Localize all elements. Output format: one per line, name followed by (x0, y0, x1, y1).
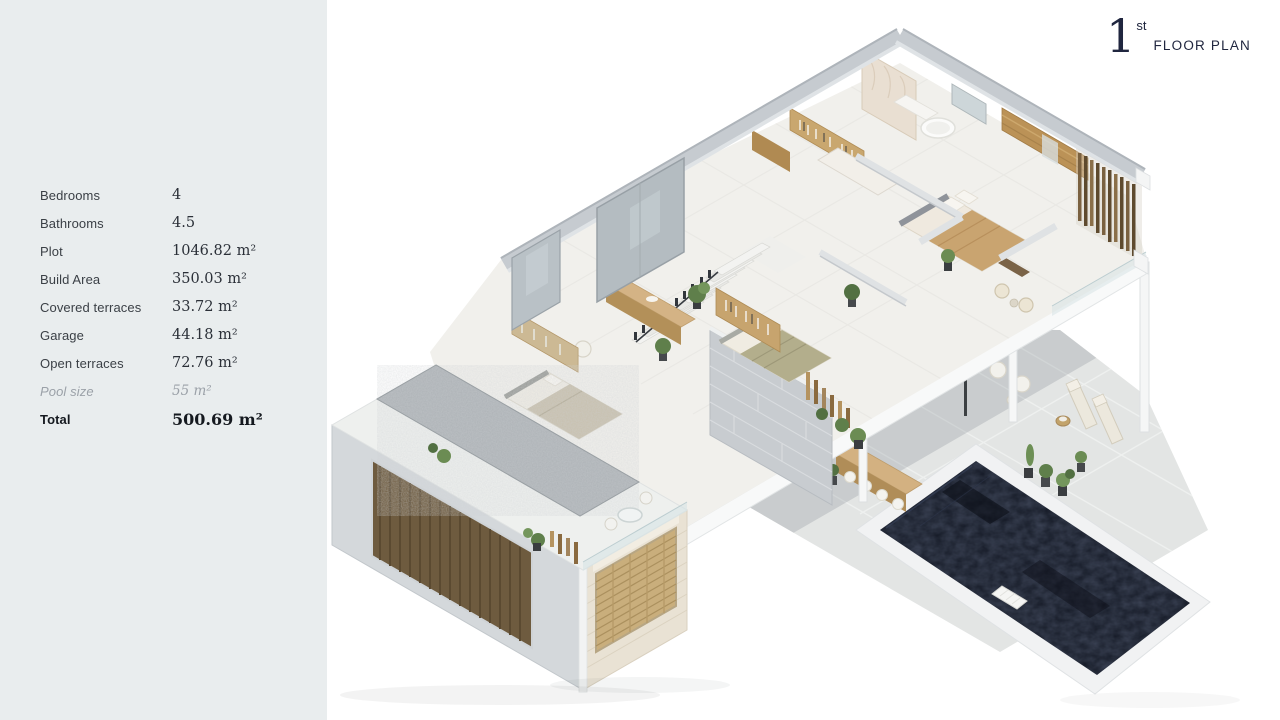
spec-label: Build Area (40, 272, 172, 287)
spec-label: Plot (40, 244, 172, 259)
spec-row-build-area: Build Area 350.03 m² (0, 265, 327, 293)
spec-row-total: Total 500.69 m² (0, 405, 327, 433)
spec-row-covered-terraces: Covered terraces 33.72 m² (0, 293, 327, 321)
spec-row-garage: Garage 44.18 m² (0, 321, 327, 349)
plan-title: 1 st FLOOR PLAN (1106, 16, 1251, 56)
spec-label: Total (40, 412, 172, 427)
spec-value: 4 (172, 187, 327, 203)
spec-value: 500.69 m² (172, 410, 327, 429)
spec-row-pool-size: Pool size 55 m² (0, 377, 327, 405)
spec-row-bedrooms: Bedrooms 4 (0, 181, 327, 209)
spec-value: 350.03 m² (172, 271, 327, 287)
floor-number: 1 (1106, 16, 1135, 56)
floor-ordinal: st (1136, 18, 1146, 33)
spec-label: Garage (40, 328, 172, 343)
spec-value: 44.18 m² (172, 327, 327, 343)
spec-label: Covered terraces (40, 300, 172, 315)
spec-value: 55 m² (172, 383, 327, 399)
spec-value: 1046.82 m² (172, 243, 327, 259)
spec-row-plot: Plot 1046.82 m² (0, 237, 327, 265)
plan-title-label: FLOOR PLAN (1153, 38, 1251, 56)
spec-label: Pool size (40, 384, 172, 399)
spec-value: 33.72 m² (172, 299, 327, 315)
spec-value: 4.5 (172, 215, 327, 231)
spec-label: Bathrooms (40, 216, 172, 231)
spec-table: Bedrooms 4 Bathrooms 4.5 Plot 1046.82 m²… (0, 181, 327, 433)
specs-panel: Bedrooms 4 Bathrooms 4.5 Plot 1046.82 m²… (0, 0, 327, 720)
spec-row-open-terraces: Open terraces 72.76 m² (0, 349, 327, 377)
spec-value: 72.76 m² (172, 355, 327, 371)
spec-row-bathrooms: Bathrooms 4.5 (0, 209, 327, 237)
spec-label: Open terraces (40, 356, 172, 371)
spec-label: Bedrooms (40, 188, 172, 203)
